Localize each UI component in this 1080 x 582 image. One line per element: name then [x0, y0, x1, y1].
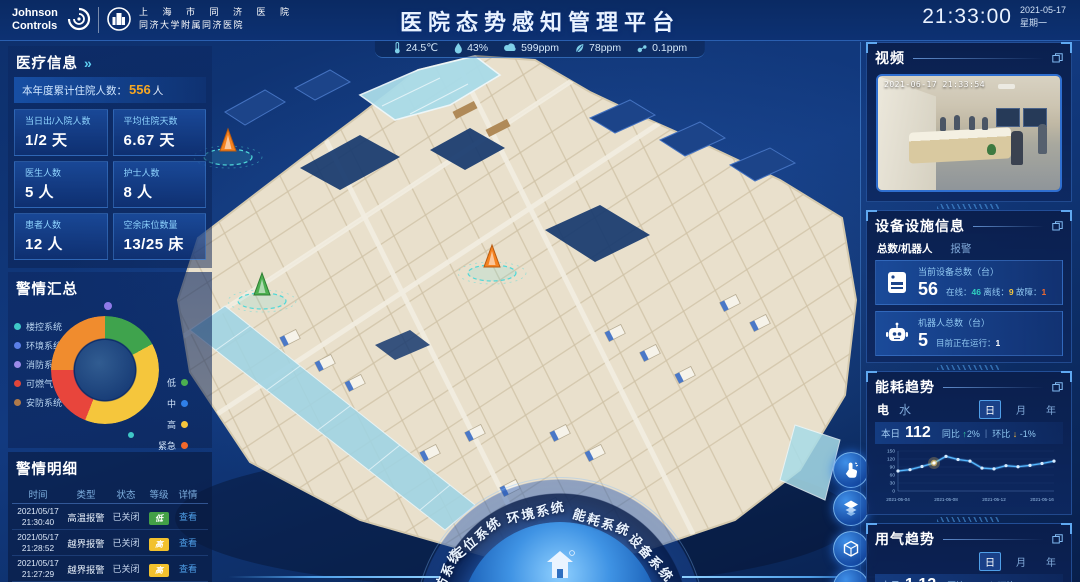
cctv-person [954, 115, 960, 130]
alarm-detail-title: 警情明细 [8, 452, 212, 483]
panel-video: 视频 2021-06-17 21:33:54 [866, 42, 1072, 202]
svg-text:150: 150 [887, 449, 895, 455]
tab-period-year[interactable]: 年 [1041, 553, 1061, 570]
header-divider [98, 7, 99, 33]
view-link[interactable]: 查看 [174, 562, 202, 575]
svg-text:2021-05-16: 2021-05-16 [1030, 497, 1054, 502]
deco-dot-teal [128, 432, 134, 438]
energy-trend-title: 能耗趋势 [875, 377, 935, 397]
tab-electricity[interactable]: 电 [877, 401, 889, 418]
stat-card-nurses: 护士人数 8 人 [113, 161, 207, 208]
cctv-video-frame[interactable]: 2021-06-17 21:33:54 [876, 74, 1062, 192]
hatch-decoration [937, 517, 1001, 522]
expand-icon[interactable] [1052, 53, 1063, 63]
hatch-decoration [937, 204, 1001, 209]
gas-trend-title: 用气趋势 [875, 529, 935, 549]
svg-text:0: 0 [892, 489, 895, 495]
panel-gas-trend: 用气趋势 日 月 年 本日 1.12 同比 ↑2% | 环比 ↓ -1% 1.8… [866, 523, 1072, 582]
dashboard: 消防系统 定位系统 环境系统 能耗系统 设备系统 Johnson Control… [0, 0, 1080, 582]
expand-icon[interactable] [1052, 221, 1063, 231]
level-badge: 高 [149, 564, 169, 577]
stat-card-free-beds: 空余床位数量 13/25 床 [113, 213, 207, 260]
level-badge: 低 [149, 512, 169, 525]
tab-period-month[interactable]: 月 [1011, 553, 1031, 570]
cctv-plant [987, 144, 996, 155]
level-badge: 高 [149, 538, 169, 551]
system-dot [14, 323, 21, 330]
tab-devices-alarm[interactable]: 报警 [950, 241, 971, 256]
stat-card-doctors: 医生人数 5 人 [14, 161, 108, 208]
pm-value: 78ppm [589, 42, 621, 54]
deco-dot-purple [104, 302, 112, 310]
clock-date: 2021-05-17 [1020, 4, 1066, 17]
svg-text:2021-05-04: 2021-05-04 [886, 497, 910, 502]
bottom-deco-line-left [228, 576, 440, 578]
energy-today-value: 112 [905, 424, 931, 442]
touch-tool-button[interactable] [833, 452, 869, 488]
thermometer-icon [393, 42, 402, 54]
hospital-logo [106, 6, 132, 32]
hospital-name: 上 海 市 同 济 医 院 同济大学附属同济医院 [139, 6, 295, 31]
table-row: 2021/05/1721:30:40 高温报警 已关闭 低 查看 [12, 504, 208, 530]
panel-devices: 设备设施信息 总数/机器人 报警 当前设备总数（台） 56 [866, 210, 1072, 363]
system-dot [14, 399, 21, 406]
svg-text:60: 60 [890, 473, 896, 479]
device-icon [884, 269, 910, 297]
energy-today-stats: 本日 112 同比 ↑2% | 环比 ↓ -1% [875, 422, 1063, 444]
panel-alarm-summary: 警情汇总 楼控系统 环境系统 消防系统 可燃气体 安防系统 低 中 高 紧急 [8, 272, 212, 448]
chevron-right-icon[interactable]: » [84, 55, 93, 71]
cctv-timestamp: 2021-06-17 21:33:54 [884, 80, 985, 89]
panel-energy-trend: 能耗趋势 电 水 日 月 年 本日 112 同比 ↑2% | 环比 ↓ -1% … [866, 371, 1072, 515]
cctv-person [1011, 131, 1023, 165]
touch-icon [841, 460, 861, 480]
alarm-summary-title: 警情汇总 [8, 272, 212, 303]
svg-text:30: 30 [890, 481, 896, 487]
tab-period-day[interactable]: 日 [979, 400, 1001, 419]
gas-today-stats: 本日 1.12 同比 ↑2% | 环比 ↓ -1% [875, 574, 1063, 582]
right-column-edge-line [860, 42, 861, 580]
arrow-down-icon: ↓ [1013, 429, 1018, 439]
device-total-value: 56 [918, 279, 938, 300]
devices-title: 设备设施信息 [875, 216, 965, 236]
cctv-reception-desk [909, 127, 1011, 163]
cctv-person [982, 117, 988, 130]
cctv-person [969, 116, 975, 130]
clock-weekday: 星期一 [1020, 17, 1066, 30]
humidity-icon [454, 42, 463, 54]
level-dot [181, 421, 188, 428]
view-link[interactable]: 查看 [174, 510, 202, 523]
level-dot [181, 400, 188, 407]
robot-total-card: 机器人总数（台） 5 目前正在运行：1 [875, 311, 1063, 356]
system-dot [14, 380, 21, 387]
system-dot [14, 342, 21, 349]
video-title: 视频 [875, 48, 905, 68]
humidity-value: 43% [467, 42, 488, 54]
level-dot [181, 442, 188, 449]
co2-icon [504, 43, 517, 53]
panel-medical-info: 医疗信息» 本年度累计住院人数：556人 当日出/入院人数 1/2 天 平均住院… [8, 46, 212, 268]
panel-alarm-detail: 警情明细 时间类型状态等级详情 2021/05/1721:30:40 高温报警 … [8, 452, 212, 582]
svg-text:2021-05-08: 2021-05-08 [934, 497, 958, 502]
home-icon[interactable] [544, 548, 576, 582]
tab-devices-total[interactable]: 总数/机器人 [877, 241, 932, 256]
temperature-value: 24.5℃ [406, 42, 438, 54]
co2-value: 599ppm [521, 42, 559, 54]
gas-today-value: 1.12 [905, 576, 936, 582]
svg-text:90: 90 [890, 465, 896, 471]
cctv-person [940, 117, 946, 131]
system-dot [14, 361, 21, 368]
leaf-icon [575, 43, 585, 54]
johnson-controls-swirl-icon [66, 6, 92, 32]
medical-info-title: 医疗信息» [8, 46, 212, 77]
gas-value: 0.1ppm [652, 42, 687, 54]
table-row: 2021/05/1721:27:29 越界报警 已关闭 高 查看 [12, 556, 208, 582]
page-title: 医院态势感知管理平台 [400, 5, 680, 37]
alarm-table-header: 时间类型状态等级详情 [12, 485, 208, 504]
svg-text:120: 120 [887, 457, 895, 463]
layers-icon [841, 498, 861, 518]
level-dot [181, 379, 188, 386]
robot-icon [884, 321, 910, 347]
clock-time: 21:33:00 [922, 5, 1012, 29]
hatch-decoration [937, 365, 1001, 370]
stat-card-patients: 患者人数 12 人 [14, 213, 108, 260]
cctv-person [1038, 124, 1047, 154]
view-link[interactable]: 查看 [174, 536, 202, 549]
stat-card-in-out-today: 当日出/入院人数 1/2 天 [14, 109, 108, 156]
tab-period-year[interactable]: 年 [1041, 401, 1061, 418]
cube-tool-button[interactable] [833, 531, 869, 567]
energy-line-chart: 03060901201502021-05-042021-05-082021-05… [871, 445, 1067, 512]
environment-bar: 24.5℃ 43% 599ppm 78ppm 0.1ppm [375, 40, 705, 58]
top-header: Johnson Controls 上 海 市 同 济 医 院 同济大学附属同济医… [0, 0, 1080, 41]
annual-inpatient-total: 本年度累计住院人数：556人 [14, 77, 206, 103]
tab-period-month[interactable]: 月 [1011, 401, 1031, 418]
stat-card-avg-stay: 平均住院天数 6.67 天 [113, 109, 207, 156]
cctv-ac-unit [998, 84, 1015, 89]
cube-icon [841, 539, 861, 559]
robot-total-value: 5 [918, 330, 928, 351]
clock: 21:33:00 2021-05-17 星期一 [922, 4, 1066, 29]
expand-icon[interactable] [1052, 534, 1063, 544]
table-row: 2021/05/1721:28:52 越界报警 已关闭 高 查看 [12, 530, 208, 556]
tab-water[interactable]: 水 [899, 401, 911, 418]
brand-logo: Johnson Controls [12, 7, 58, 32]
alarm-donut [51, 316, 159, 424]
gas-icon [637, 43, 648, 53]
device-total-card: 当前设备总数（台） 56 在线：46 离线：9 故障：1 [875, 260, 1063, 305]
expand-icon[interactable] [1052, 382, 1063, 392]
svg-text:2021-05-12: 2021-05-12 [982, 497, 1006, 502]
layers-tool-button[interactable] [833, 490, 869, 526]
tab-period-day[interactable]: 日 [979, 552, 1001, 571]
alarm-level-legend: 低 中 高 紧急 [146, 376, 188, 460]
